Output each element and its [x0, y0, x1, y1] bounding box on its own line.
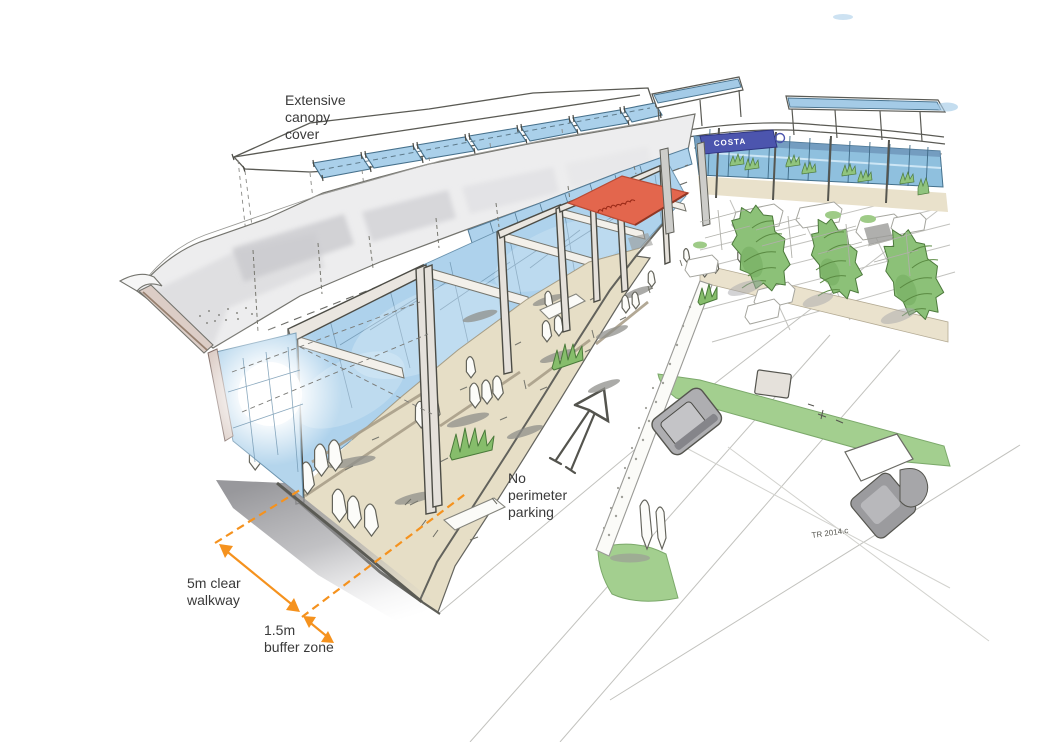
svg-text:TR 2014.c: TR 2014.c — [811, 526, 849, 540]
